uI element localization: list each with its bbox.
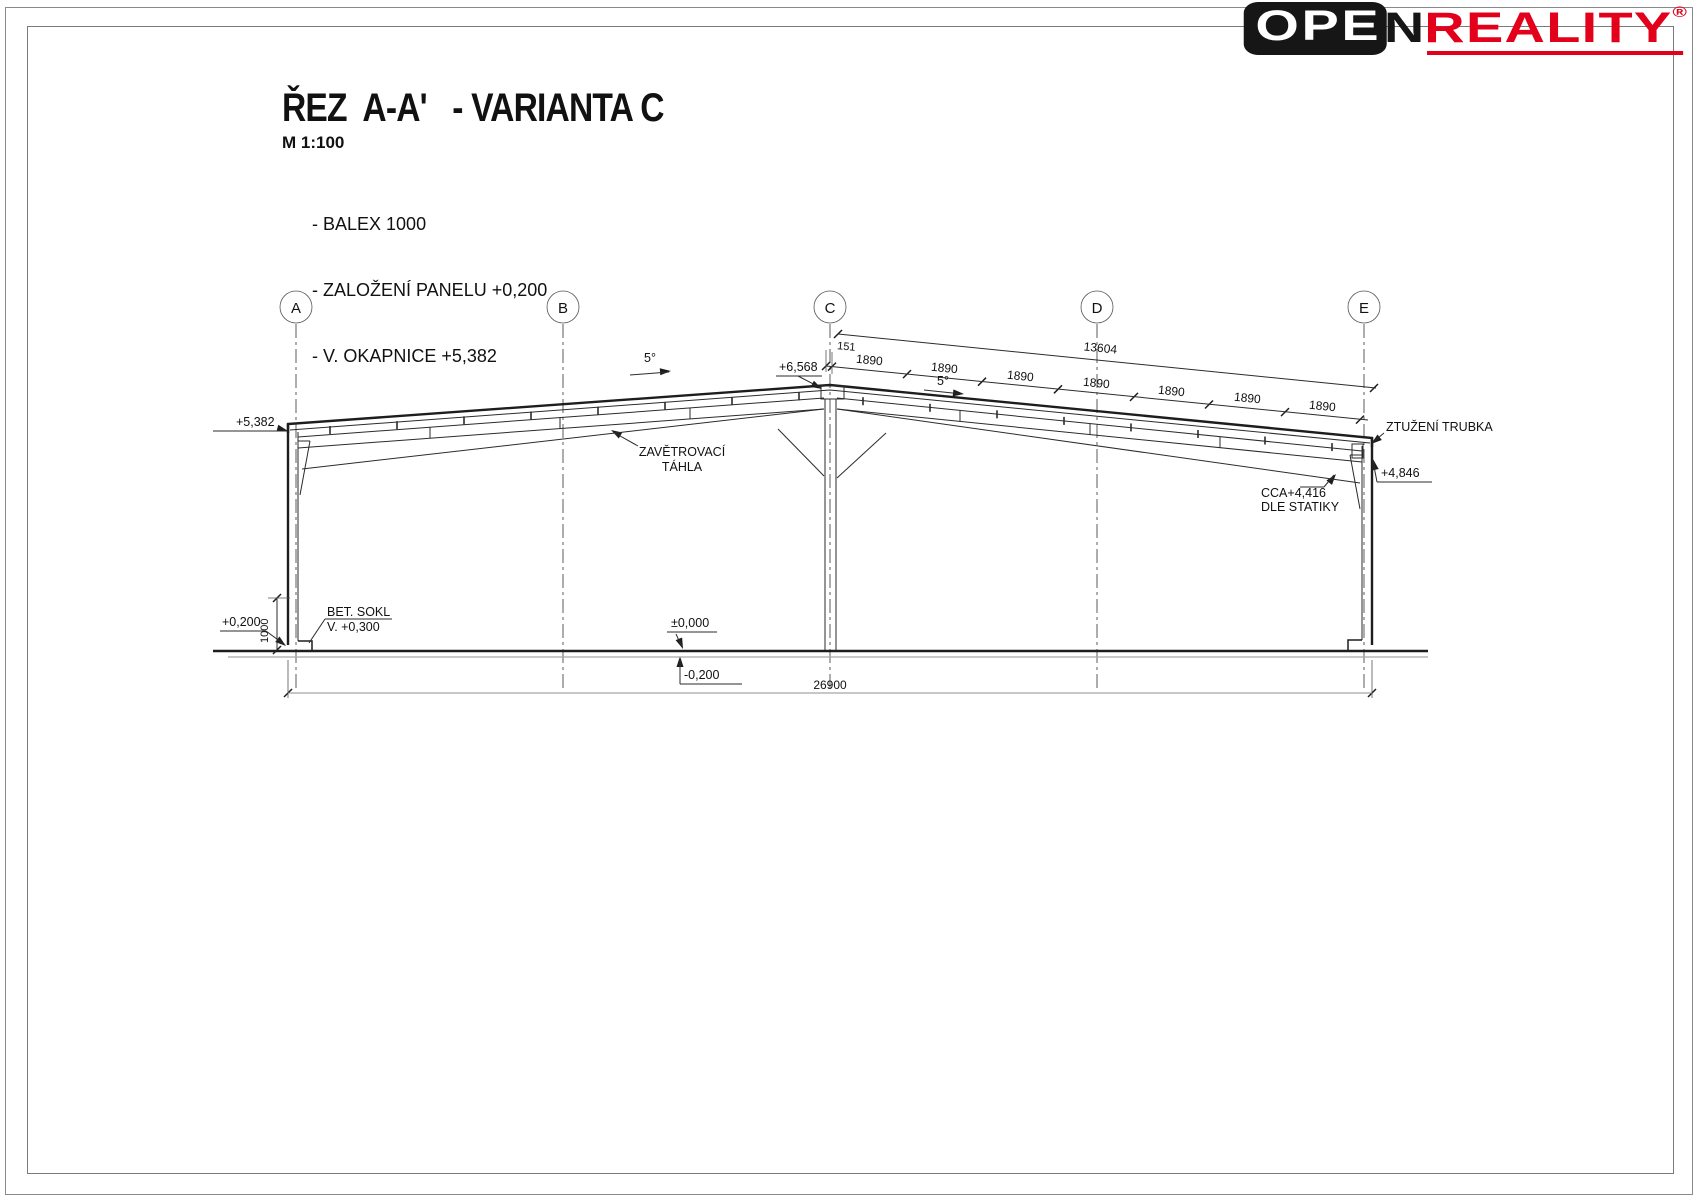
roof-first-segment-dim: 151 <box>837 340 856 354</box>
tube-label: ZTUŽENÍ TRUBKA <box>1386 419 1493 434</box>
eave-right-level: +4,846 <box>1381 466 1420 480</box>
haunch-label: DLE STATIKY <box>1261 500 1340 514</box>
roof-overall-dim: 13604 <box>1083 339 1118 356</box>
floor-level: ±0,000 <box>671 616 709 630</box>
ridge-level: +6,568 <box>779 360 818 374</box>
bracing-tie-right <box>837 409 1360 483</box>
foundation-level: -0,200 <box>684 668 719 682</box>
grid-label: A <box>291 300 301 317</box>
drawing-sheet: OPENREALITY® ŘEZ A-A' - VARIANTA C M 1:1… <box>0 0 1697 1200</box>
section-drawing: A B C D E <box>0 0 1697 1200</box>
haunch-label: CCA+4,416 <box>1261 486 1326 500</box>
plinth-label: V. +0,300 <box>327 620 380 634</box>
leader <box>613 432 638 446</box>
roof-segment-dim: 1890 <box>1082 375 1110 392</box>
building-structure <box>213 385 1428 657</box>
rafter-top-right <box>837 398 1362 451</box>
center-haunch-left <box>778 429 824 476</box>
base-level: +0,200 <box>222 615 261 629</box>
grid-bubbles: A B C D E <box>280 291 1380 323</box>
dimensions: 13604 151 1890 1890 1890 1890 1890 1890 … <box>259 334 1376 698</box>
center-haunch-right <box>837 433 886 478</box>
leader <box>1372 433 1384 443</box>
bracing-label: ZAVĚTROVACÍ <box>639 444 726 459</box>
grid-label: D <box>1092 300 1103 317</box>
roof-segment-dim: 1890 <box>1233 390 1261 407</box>
leader <box>309 619 325 643</box>
grid-label: B <box>558 300 568 317</box>
roof-segment-dim: 1890 <box>1308 398 1336 415</box>
rafter-bottom-left <box>298 409 824 448</box>
arrowhead <box>660 368 671 376</box>
slope-right-label: 5° <box>937 374 949 388</box>
overall-width-dim: 26900 <box>813 678 847 692</box>
annotations: +5,382 +6,568 5° 5° ZAVĚTROVACÍ TÁHLA ZT… <box>213 351 1493 684</box>
eave-left-level: +5,382 <box>236 415 275 429</box>
roof-segment-dim: 1890 <box>1006 368 1034 385</box>
slope-left-label: 5° <box>644 351 656 365</box>
grid-label: C <box>825 300 836 317</box>
roof-segment-dim: 1890 <box>1157 383 1185 400</box>
plinth-label: BET. SOKL <box>327 605 390 619</box>
roof-segment-dim: 1890 <box>855 352 883 369</box>
bracing-label: TÁHLA <box>662 459 703 474</box>
generated-details <box>273 324 1382 697</box>
grid-label: E <box>1359 300 1369 317</box>
ridge-detail <box>821 386 844 399</box>
